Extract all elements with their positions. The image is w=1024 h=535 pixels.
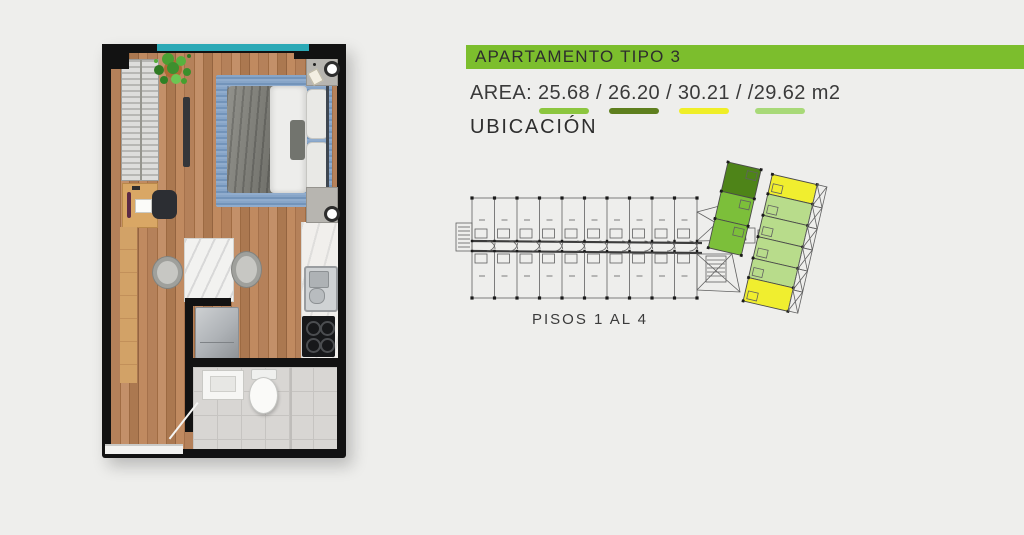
book <box>307 68 323 86</box>
building-site-plan <box>450 150 830 320</box>
dining-chair-right <box>231 251 262 288</box>
highlighted-units <box>697 160 828 315</box>
tv-stand <box>183 97 190 167</box>
dining-table <box>184 238 234 302</box>
decor-dot <box>313 63 316 66</box>
refrigerator <box>195 307 239 359</box>
area-row: AREA: 25.68 / 26.20 / 30.21 / /29.62 m2 <box>470 82 840 105</box>
burner-icon <box>306 321 321 336</box>
title-bar: APARTAMENTO TIPO 3 <box>466 45 1024 69</box>
laptop <box>135 199 152 213</box>
dining-chair-left <box>152 256 183 289</box>
desk-lamp <box>127 192 131 218</box>
bathroom-wall <box>185 358 337 367</box>
floors-label: PISOS 1 AL 4 <box>470 311 710 328</box>
burner-icon <box>320 321 335 336</box>
sink-bowl <box>309 288 325 304</box>
toilet <box>248 369 278 413</box>
kitchen-sink <box>304 266 338 312</box>
area-value: 29.62 <box>754 82 806 105</box>
area-value: 26.20 <box>608 82 660 105</box>
area-separator: / <box>660 82 678 104</box>
area-value: 30.21 <box>678 82 730 105</box>
lamp-icon <box>324 206 340 222</box>
cooktop <box>302 316 335 357</box>
desk-chair <box>152 190 177 219</box>
plant <box>147 44 197 94</box>
location-heading: UBICACIÓN <box>470 116 597 139</box>
bed-cushion <box>290 120 305 160</box>
unit-grid <box>470 196 698 299</box>
burner-icon <box>320 338 335 353</box>
wood-console <box>120 227 137 383</box>
toilet-bowl <box>249 377 278 414</box>
area-values: 25.68 / 26.20 / 30.21 / /29.62 <box>538 82 806 104</box>
bathroom-vanity <box>202 370 244 400</box>
area-value: 25.68 <box>538 82 590 105</box>
lamp-icon <box>324 61 340 77</box>
bed-blanket <box>227 86 273 193</box>
nightstand-top <box>306 57 338 86</box>
bed <box>227 86 329 193</box>
window-strip-bottom <box>105 444 183 454</box>
area-unit: m2 <box>812 82 841 104</box>
plant-leaves <box>167 62 179 74</box>
apartment-floorplan <box>102 44 346 458</box>
nightstand-bottom <box>306 187 338 223</box>
wall-corner-top-left <box>102 44 129 69</box>
area-separator: / / <box>730 82 754 104</box>
area-separator: / <box>590 82 608 104</box>
burner-icon <box>306 338 321 353</box>
sink-bowl <box>309 271 329 288</box>
phone <box>132 186 140 190</box>
shower-glass <box>290 367 292 449</box>
stair-left <box>456 223 472 251</box>
apartment-title: APARTAMENTO TIPO 3 <box>466 47 681 67</box>
bed-headboard <box>326 86 329 193</box>
area-label: AREA: <box>470 82 532 104</box>
